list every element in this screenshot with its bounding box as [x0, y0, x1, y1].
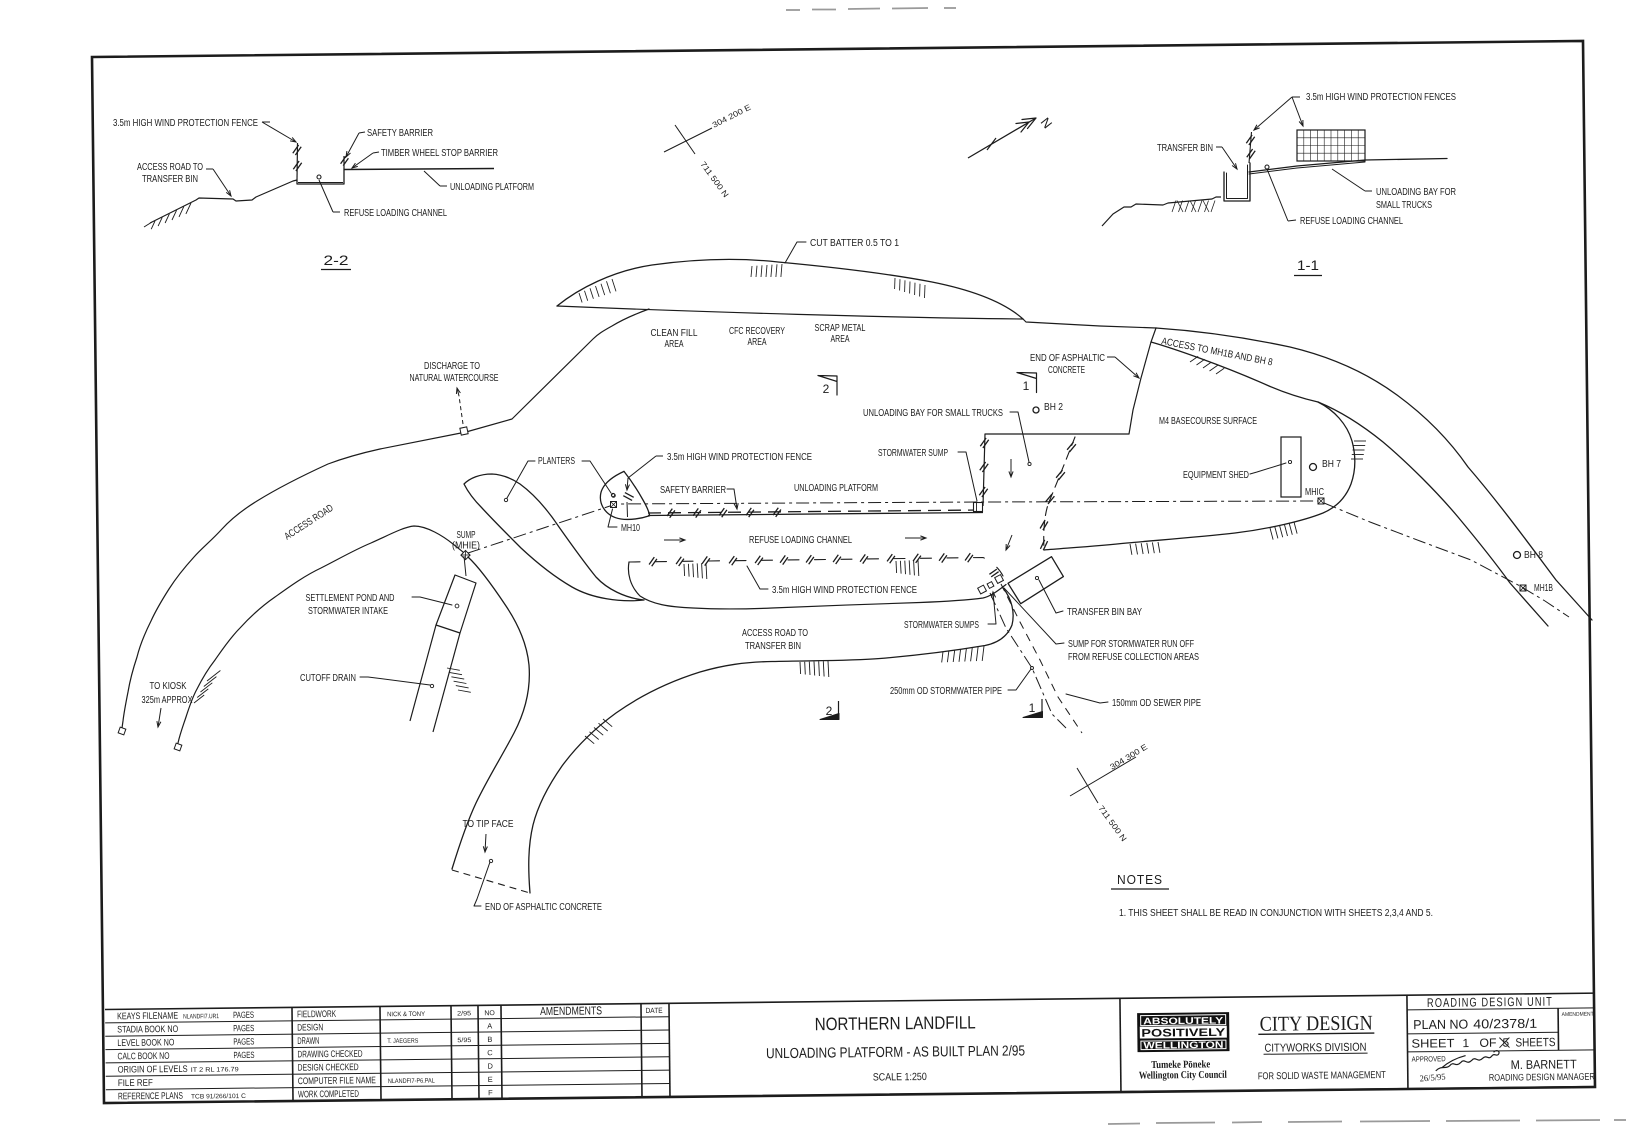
svg-text:SETTLEMENT POND AND: SETTLEMENT POND AND: [306, 593, 395, 604]
svg-text:CUT BATTER 0.5 TO 1: CUT BATTER 0.5 TO 1: [810, 238, 899, 249]
svg-text:SUMP: SUMP: [457, 530, 476, 541]
svg-text:325m APPROX: 325m APPROX: [142, 695, 193, 706]
svg-text:NOTES: NOTES: [1117, 872, 1163, 887]
svg-text:KEAYS FILENAME: KEAYS FILENAME: [117, 1011, 178, 1023]
svg-text:FIELDWORK: FIELDWORK: [297, 1009, 337, 1020]
svg-text:UNLOADING BAY FOR: UNLOADING BAY FOR: [1376, 187, 1456, 198]
svg-text:UNLOADING PLATFORM - AS BUILT: UNLOADING PLATFORM - AS BUILT PLAN 2/95: [766, 1043, 1025, 1062]
svg-text:TRANSFER BIN: TRANSFER BIN: [142, 174, 198, 185]
svg-text:SAFETY BARRIER: SAFETY BARRIER: [367, 128, 433, 139]
svg-text:E: E: [488, 1075, 493, 1084]
svg-text:T. JAEGERS: T. JAEGERS: [387, 1038, 419, 1045]
svg-text:MH1B: MH1B: [1534, 583, 1553, 594]
svg-text:250mm OD STORMWATER PIPE: 250mm OD STORMWATER PIPE: [890, 686, 1002, 697]
svg-text:TRANSFER BIN: TRANSFER BIN: [1157, 143, 1213, 154]
svg-text:STORMWATER SUMPS: STORMWATER SUMPS: [904, 620, 979, 631]
svg-text:PLAN NO: PLAN NO: [1413, 1017, 1468, 1033]
svg-text:PAGES: PAGES: [233, 1010, 254, 1020]
svg-text:PLANTERS: PLANTERS: [538, 456, 575, 467]
svg-text:1: 1: [1029, 701, 1036, 715]
svg-text:SCRAP METAL: SCRAP METAL: [815, 323, 866, 334]
svg-text:2: 2: [823, 382, 830, 396]
svg-text:CLEAN FILL: CLEAN FILL: [651, 328, 698, 339]
svg-text:TCB 91/266/101 C: TCB 91/266/101 C: [191, 1093, 246, 1101]
svg-text:TO KIOSK: TO KIOSK: [150, 681, 187, 692]
svg-text:WORK COMPLETED: WORK COMPLETED: [298, 1089, 359, 1101]
svg-text:TRANSFER BIN: TRANSFER BIN: [745, 641, 801, 652]
svg-text:MH10: MH10: [621, 523, 640, 534]
svg-text:AREA: AREA: [665, 339, 684, 350]
svg-text:CALC BOOK NO: CALC BOOK NO: [117, 1051, 169, 1063]
svg-text:UNLOADING PLATFORM: UNLOADING PLATFORM: [450, 182, 534, 193]
svg-text:1. THIS SHEET SHALL BE READ: 1. THIS SHEET SHALL BE READ IN CONJUNCTI…: [1119, 908, 1433, 919]
svg-text:STADIA BOOK NO: STADIA BOOK NO: [117, 1024, 178, 1036]
svg-text:ACCESS ROAD TO: ACCESS ROAD TO: [137, 162, 203, 173]
svg-text:CUTOFF DRAIN: CUTOFF DRAIN: [300, 673, 356, 684]
svg-text:STORMWATER INTAKE: STORMWATER INTAKE: [308, 606, 388, 617]
svg-text:1: 1: [1023, 379, 1030, 393]
svg-text:REFUSE LOADING CHANNEL: REFUSE LOADING CHANNEL: [749, 535, 852, 546]
svg-text:AMENDMENT: AMENDMENT: [1562, 1012, 1595, 1018]
svg-text:BH 2: BH 2: [1044, 402, 1063, 413]
svg-text:WELLINGTON: WELLINGTON: [1143, 1040, 1223, 1052]
svg-text:F: F: [488, 1088, 493, 1097]
svg-text:3.5m HIGH WIND PROTECTION FENC: 3.5m HIGH WIND PROTECTION FENCES: [1306, 92, 1456, 103]
svg-text:PAGES: PAGES: [233, 1050, 254, 1060]
svg-text:AREA: AREA: [831, 334, 850, 345]
svg-text:DISCHARGE TO: DISCHARGE TO: [424, 361, 480, 372]
svg-text:ROADING DESIGN UNIT: ROADING DESIGN UNIT: [1427, 995, 1553, 1010]
svg-text:A: A: [487, 1021, 492, 1030]
svg-text:STORMWATER SUMP: STORMWATER SUMP: [878, 448, 948, 459]
svg-text:CITYWORKS DIVISION: CITYWORKS DIVISION: [1264, 1042, 1366, 1055]
svg-text:AREA: AREA: [748, 337, 767, 348]
svg-text:PAGES: PAGES: [233, 1036, 254, 1046]
svg-text:26/5/95: 26/5/95: [1419, 1071, 1446, 1083]
svg-text:DESIGN CHECKED: DESIGN CHECKED: [298, 1062, 359, 1074]
svg-text:FILE REF: FILE REF: [118, 1078, 153, 1089]
svg-text:DRAWING CHECKED: DRAWING CHECKED: [297, 1049, 362, 1061]
svg-text:SUMP FOR STORMWATER RUN OFF: SUMP FOR STORMWATER RUN OFF: [1068, 639, 1194, 650]
svg-text:NLANDFI7-P6.PAL: NLANDFI7-P6.PAL: [388, 1078, 435, 1086]
svg-text:END OF ASPHALTIC CONCRETE: END OF ASPHALTIC CONCRETE: [485, 902, 602, 913]
svg-text:3.5m HIGH WIND PROTECTION FENC: 3.5m HIGH WIND PROTECTION FENCE: [667, 452, 812, 463]
svg-text:NLANDFI7.UR1: NLANDFI7.UR1: [183, 1013, 219, 1020]
svg-text:EQUIPMENT SHED: EQUIPMENT SHED: [1183, 470, 1249, 481]
svg-text:SHEET: SHEET: [1411, 1036, 1455, 1050]
svg-text:MHIC: MHIC: [1305, 487, 1324, 498]
svg-text:UNLOADING BAY FOR SMALL TRUCKS: UNLOADING BAY FOR SMALL TRUCKS: [863, 408, 1003, 419]
svg-text:(MHIE): (MHIE): [452, 541, 480, 552]
svg-text:AMENDMENTS: AMENDMENTS: [540, 1005, 602, 1018]
svg-text:APPROVED: APPROVED: [1412, 1054, 1447, 1063]
svg-text:NO: NO: [484, 1010, 495, 1017]
svg-text:CITY DESIGN: CITY DESIGN: [1260, 1011, 1373, 1036]
svg-text:ROADING DESIGN MANAGER: ROADING DESIGN MANAGER: [1489, 1072, 1595, 1084]
svg-text:TRANSFER BIN BAY: TRANSFER BIN BAY: [1067, 607, 1142, 618]
svg-text:REFUSE LOADING CHANNEL: REFUSE LOADING CHANNEL: [344, 208, 447, 219]
svg-text:NICK & TONY: NICK & TONY: [387, 1011, 426, 1018]
svg-text:40/2378/1: 40/2378/1: [1473, 1016, 1537, 1032]
svg-text:SAFETY BARRIER: SAFETY BARRIER: [660, 485, 726, 496]
svg-text:END OF ASPHALTIC: END OF ASPHALTIC: [1030, 353, 1105, 364]
svg-text:150mm OD SEWER PIPE: 150mm OD SEWER PIPE: [1112, 698, 1201, 709]
svg-text:UNLOADING PLATFORM: UNLOADING PLATFORM: [794, 483, 878, 494]
svg-text:2/95: 2/95: [457, 1010, 471, 1017]
svg-text:ABSOLUTELY: ABSOLUTELY: [1143, 1015, 1224, 1027]
svg-text:BH 8: BH 8: [1524, 550, 1543, 561]
svg-text:SHEETS: SHEETS: [1515, 1035, 1555, 1049]
svg-text:LEVEL BOOK NO: LEVEL BOOK NO: [117, 1037, 174, 1049]
svg-text:IT 2 RL 176.79: IT 2 RL 176.79: [191, 1066, 240, 1074]
svg-text:TIMBER WHEEL STOP BARRIER: TIMBER WHEEL STOP BARRIER: [381, 148, 498, 159]
svg-text:DESIGN: DESIGN: [297, 1022, 323, 1033]
svg-text:ORIGIN OF LEVELS: ORIGIN OF LEVELS: [118, 1064, 188, 1076]
svg-text:3.5m HIGH WIND PROTECTION FENC: 3.5m HIGH WIND PROTECTION FENCE: [113, 118, 258, 129]
svg-text:5: 5: [1502, 1036, 1509, 1050]
svg-text:2: 2: [826, 704, 833, 718]
svg-text:2-2: 2-2: [324, 252, 349, 268]
svg-text:PAGES: PAGES: [233, 1023, 254, 1033]
svg-text:REFUSE LOADING CHANNEL: REFUSE LOADING CHANNEL: [1300, 216, 1403, 227]
svg-text:FROM REFUSE COLLECTION AREAS: FROM REFUSE COLLECTION AREAS: [1068, 652, 1199, 663]
svg-text:1-1: 1-1: [1297, 257, 1319, 273]
svg-text:DATE: DATE: [645, 1006, 662, 1015]
svg-text:1: 1: [1462, 1036, 1469, 1050]
svg-text:SCALE 1:250: SCALE 1:250: [873, 1071, 927, 1084]
svg-text:SMALL TRUCKS: SMALL TRUCKS: [1376, 200, 1432, 211]
svg-text:C: C: [487, 1048, 493, 1057]
svg-text:D: D: [487, 1062, 493, 1071]
svg-text:NORTHERN LANDFILL: NORTHERN LANDFILL: [815, 1012, 976, 1034]
svg-text:FOR SOLID WASTE MANAGEMENT: FOR SOLID WASTE MANAGEMENT: [1258, 1070, 1386, 1082]
svg-text:Wellington City Council: Wellington City Council: [1139, 1070, 1227, 1082]
svg-text:CFC RECOVERY: CFC RECOVERY: [729, 326, 785, 337]
svg-text:BH 7: BH 7: [1322, 459, 1341, 470]
svg-text:NATURAL WATERCOURSE: NATURAL WATERCOURSE: [410, 373, 499, 384]
svg-text:OF: OF: [1479, 1036, 1496, 1050]
svg-text:CONCRETE: CONCRETE: [1048, 365, 1085, 376]
svg-text:B: B: [487, 1035, 492, 1044]
svg-text:5/95: 5/95: [457, 1037, 471, 1044]
svg-text:POSITIVELY: POSITIVELY: [1141, 1027, 1226, 1040]
svg-text:ACCESS ROAD TO: ACCESS ROAD TO: [742, 628, 808, 639]
svg-text:M4 BASECOURSE SURFACE: M4 BASECOURSE SURFACE: [1159, 416, 1257, 427]
svg-text:COMPUTER FILE NAME: COMPUTER FILE NAME: [298, 1075, 376, 1087]
svg-text:DRAWN: DRAWN: [297, 1036, 319, 1047]
svg-text:TO TIP FACE: TO TIP FACE: [463, 819, 514, 830]
svg-text:3.5m HIGH WIND PROTECTION FENC: 3.5m HIGH WIND PROTECTION FENCE: [772, 585, 917, 596]
svg-text:M. BARNETT: M. BARNETT: [1511, 1057, 1577, 1072]
svg-text:REFERENCE PLANS: REFERENCE PLANS: [118, 1091, 183, 1103]
